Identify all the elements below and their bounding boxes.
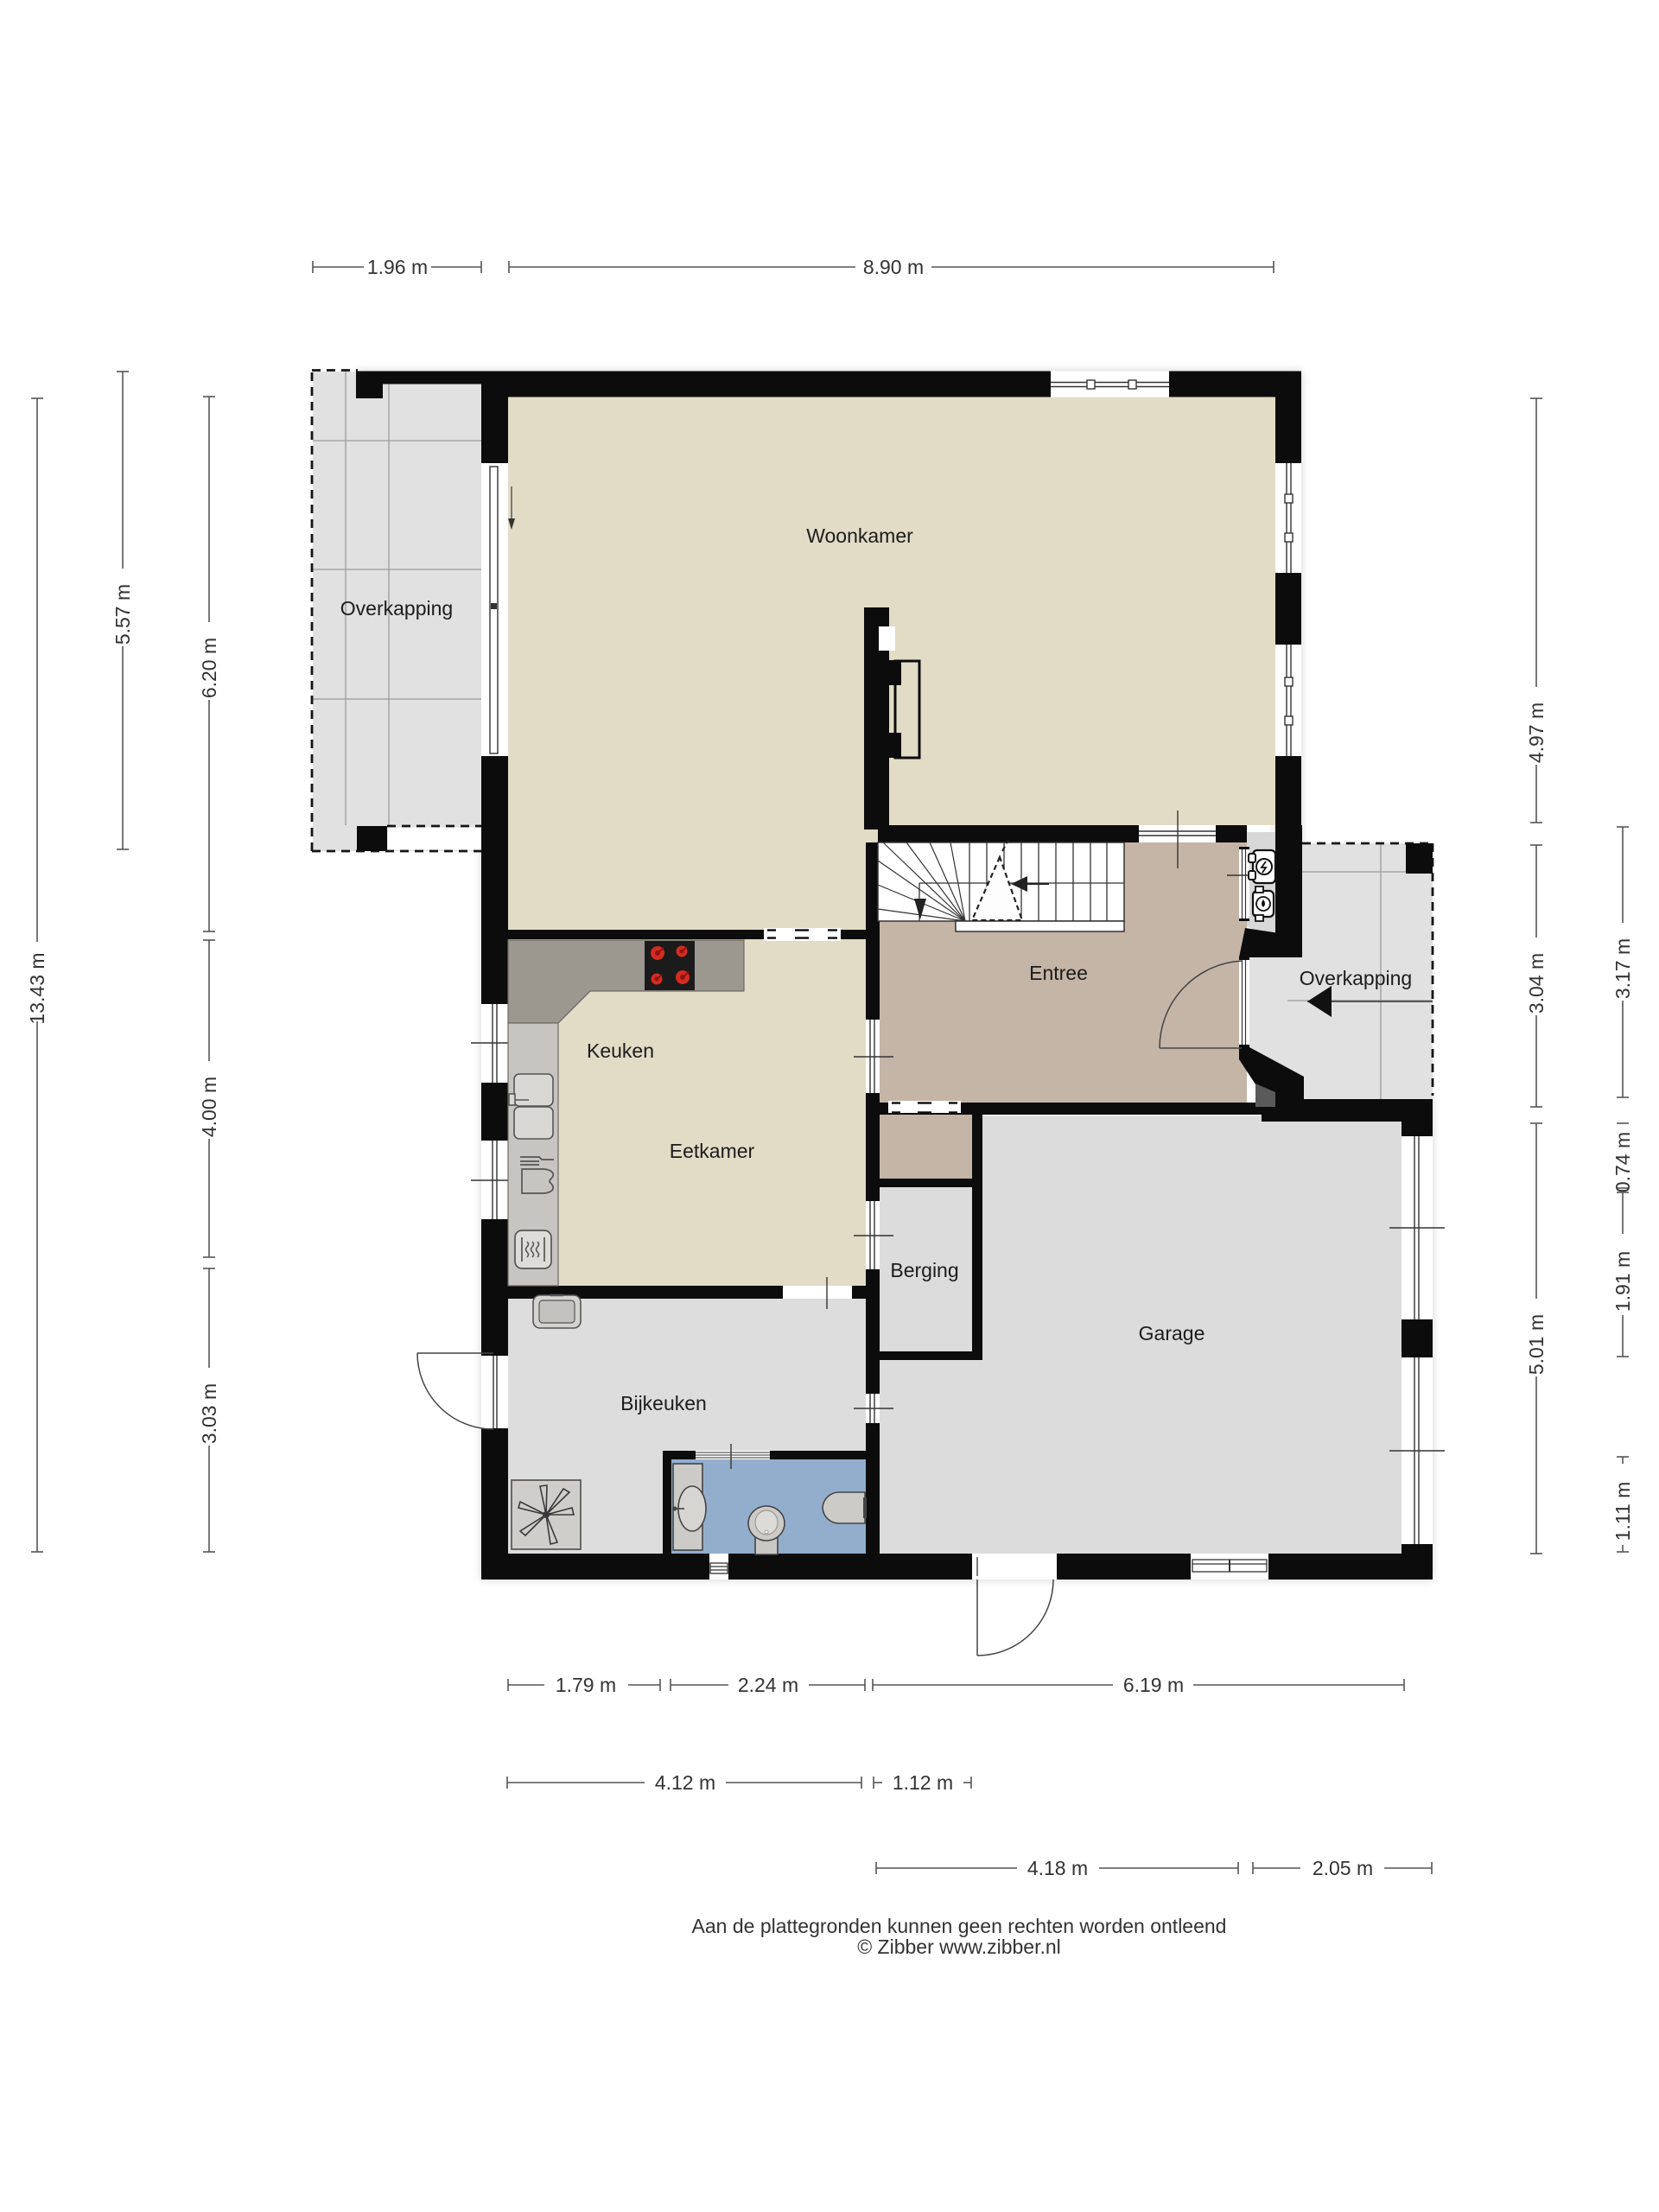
svg-text:1.91 m: 1.91 m [1611, 1251, 1634, 1312]
svg-text:Berging: Berging [890, 1259, 958, 1281]
svg-text:© Zibber www.zibber.nl: © Zibber www.zibber.nl [857, 1935, 1061, 1958]
svg-text:5.01 m: 5.01 m [1525, 1314, 1548, 1375]
svg-text:Overkapping: Overkapping [1300, 967, 1412, 989]
svg-text:Bijkeuken: Bijkeuken [620, 1392, 707, 1414]
svg-text:3.17 m: 3.17 m [1611, 938, 1634, 999]
svg-text:4.00 m: 4.00 m [198, 1077, 220, 1137]
svg-text:Garage: Garage [1139, 1322, 1205, 1344]
svg-text:Entree: Entree [1029, 962, 1088, 984]
svg-text:6.19 m: 6.19 m [1123, 1674, 1184, 1696]
svg-text:5.57 m: 5.57 m [111, 584, 134, 645]
svg-text:Woonkamer: Woonkamer [806, 524, 913, 547]
svg-text:8.90 m: 8.90 m [863, 256, 924, 278]
svg-text:Overkapping: Overkapping [340, 597, 453, 620]
svg-text:2.24 m: 2.24 m [738, 1674, 798, 1696]
svg-text:Aan de plattegronden kunnen ge: Aan de plattegronden kunnen geen rechten… [692, 1915, 1227, 1937]
svg-text:0.74 m: 0.74 m [1611, 1132, 1634, 1192]
svg-text:1.79 m: 1.79 m [556, 1674, 616, 1696]
svg-text:4.12 m: 4.12 m [655, 1771, 715, 1794]
svg-text:3.04 m: 3.04 m [1525, 953, 1548, 1014]
svg-text:4.97 m: 4.97 m [1525, 702, 1548, 763]
svg-text:13.43 m: 13.43 m [26, 952, 48, 1024]
svg-text:3.03 m: 3.03 m [198, 1383, 220, 1444]
svg-text:1.12 m: 1.12 m [893, 1771, 953, 1794]
svg-text:4.18 m: 4.18 m [1027, 1857, 1088, 1879]
svg-text:1.96 m: 1.96 m [367, 256, 428, 278]
svg-text:2.05 m: 2.05 m [1313, 1857, 1373, 1879]
svg-text:6.20 m: 6.20 m [198, 638, 220, 698]
svg-text:Keuken: Keuken [587, 1039, 654, 1062]
svg-text:1.11 m: 1.11 m [1611, 1482, 1634, 1541]
svg-text:Eetkamer: Eetkamer [670, 1140, 755, 1162]
